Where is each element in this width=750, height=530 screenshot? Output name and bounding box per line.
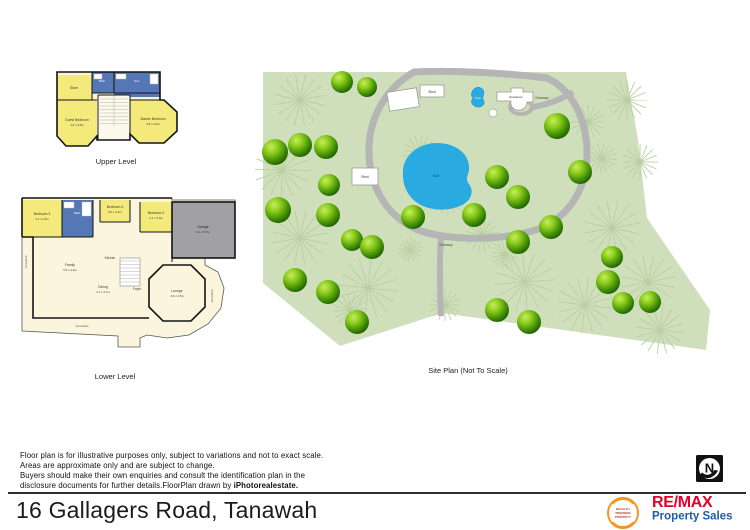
tree (596, 270, 620, 294)
tree (506, 185, 530, 209)
bath-label: Bath (99, 79, 105, 83)
disclaimer-line-4: disclosure documents for further details… (20, 481, 323, 491)
ensuite-label: Ens (135, 79, 141, 83)
lounge-label: Lounge (171, 289, 182, 293)
outbuilding (387, 88, 420, 111)
bath-fixture (82, 202, 91, 216)
disclaimer-line-2: Areas are approximate only and are subje… (20, 461, 323, 471)
verandah-right-label: Verandah (210, 289, 214, 302)
site-plan-caption: Site Plan (Not To Scale) (428, 366, 508, 375)
water-tank (489, 109, 497, 117)
tree (639, 291, 661, 313)
tree (357, 77, 377, 97)
tree (316, 203, 340, 227)
bedroom2-dims: 4.1 x 3.0m (149, 216, 163, 220)
tree (568, 160, 592, 184)
tree (544, 113, 570, 139)
tree (341, 229, 363, 251)
tree (360, 235, 384, 259)
master-bedroom-dims: 4.8 x 4.0m (146, 122, 160, 126)
family-label: Family (65, 263, 75, 267)
tree (401, 205, 425, 229)
garage-label: Garage (197, 225, 208, 229)
verandah-bottom-label: Verandah (76, 324, 89, 328)
tree (318, 174, 340, 196)
bath-fixture (64, 202, 74, 208)
bedroom4-dims: 3.0 x 2.4m (108, 210, 122, 214)
tree (485, 298, 509, 322)
bedroom2-label: Bedroom 2 (148, 211, 165, 215)
kitchen-label: Kitchen (105, 256, 116, 260)
remax-name: RE/MAX (652, 494, 713, 511)
tree (485, 165, 509, 189)
north-arrow-icon: N (696, 455, 723, 482)
tree (345, 310, 369, 334)
upper-level-caption: Upper Level (96, 157, 137, 166)
disclaimer-line-1: Floor plan is for illustrative purposes … (20, 451, 323, 461)
pool-label: Pool (475, 96, 481, 100)
bath-label: Bath (74, 211, 81, 215)
disclaimer-text: Floor plan is for illustrative purposes … (20, 451, 323, 491)
tree (506, 230, 530, 254)
lower-level-caption: Lower Level (95, 372, 136, 381)
faint-tree (607, 80, 647, 120)
site-plan: Dam Shed Pool Residence Shed Driveway Dr… (255, 58, 720, 383)
ensuite-fixture (116, 74, 126, 79)
driveway-top-label: Driveway (535, 96, 549, 100)
remax-tagline: Property Sales (652, 511, 733, 523)
tree (265, 197, 291, 223)
shed-top-label: Shed (428, 90, 436, 94)
dam-label: Dam (433, 174, 440, 178)
garage-dims: 6.1 x 5.7m (196, 230, 210, 234)
tree (314, 135, 338, 159)
badge-line-3: PROPERTY (615, 515, 631, 519)
drawn-by-credit: iPhotorealestate. (234, 481, 299, 490)
guest-bedroom-dims: 4.5 x 4.0m (70, 123, 84, 127)
agency-badge: BEAGLEY PREMIERE PROPERTY (608, 498, 638, 528)
bedroom3-label: Bedroom 3 (34, 212, 51, 216)
tree (262, 139, 288, 165)
residence-label: Residence (509, 95, 523, 99)
tree (331, 71, 353, 93)
page-title: 16 Gallagers Road, Tanawah (16, 497, 317, 524)
upper-level-floorplan: Store Bath Ens Guest Bedroom 4.5 x 4.0m … (30, 60, 215, 170)
disclaimer-line-3: Buyers should make their own enquiries a… (20, 471, 323, 481)
branding-block: N BEAGLEY PREMIERE PROPERTY RE/MAX Prope… (595, 450, 745, 530)
remax-logo: RE/MAX Property Sales (652, 494, 733, 523)
lounge-dims: 4.9 x 4.5m (170, 294, 184, 298)
verandah-left-label: Verandah (24, 255, 28, 268)
foyer-label: Foyer (133, 287, 142, 291)
lower-level-floorplan: Bedroom 3 4.1 x 2.6m Bath Bedroom 4 3.0 … (10, 185, 250, 385)
bedroom4-label: Bedroom 4 (107, 205, 124, 209)
tree (539, 215, 563, 239)
tree (612, 292, 634, 314)
tree (288, 133, 312, 157)
dining-dims: 4.1 x 3.7m (96, 290, 110, 294)
shed-mid-label: Shed (361, 175, 369, 179)
tree (517, 310, 541, 334)
guest-bedroom-label: Guest Bedroom (65, 118, 89, 122)
faint-tree (622, 144, 658, 180)
driveway-mid-label: Driveway (439, 243, 453, 247)
tree (316, 280, 340, 304)
master-bedroom-label: Master Bedroom (140, 117, 165, 121)
faint-tree (429, 289, 461, 321)
tree (462, 203, 486, 227)
tree (601, 246, 623, 268)
bedroom3-dims: 4.1 x 2.6m (35, 217, 49, 221)
tree (283, 268, 307, 292)
store-label: Store (70, 86, 78, 90)
dining-label: Dining (98, 285, 108, 289)
family-dims: 5.5 x 4.9m (63, 268, 77, 272)
ensuite-fixture (150, 74, 158, 84)
